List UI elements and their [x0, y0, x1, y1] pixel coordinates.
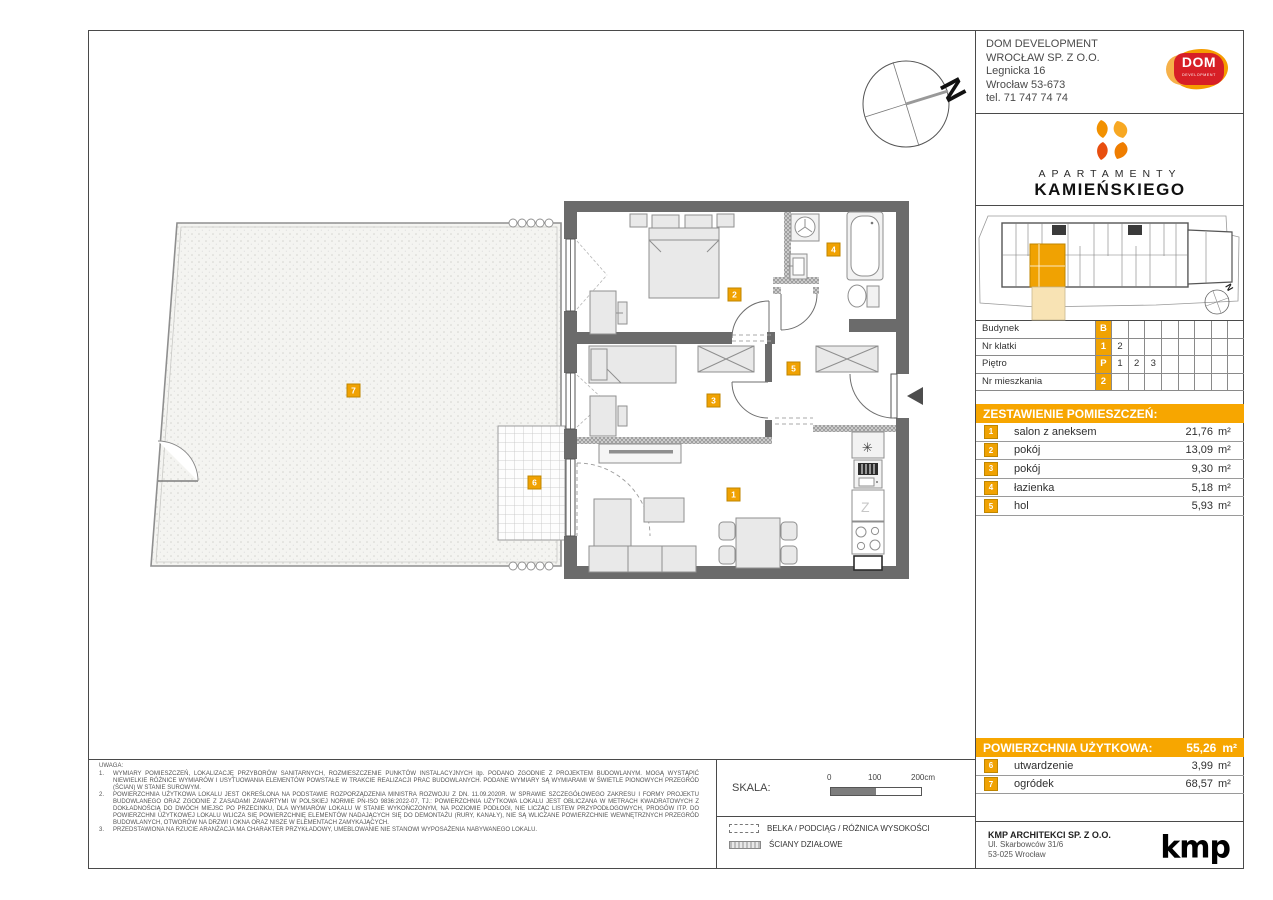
hall-furniture	[816, 346, 878, 372]
oven	[854, 460, 882, 488]
chair	[719, 522, 735, 540]
floor-plan-sheet: N	[0, 0, 1273, 900]
project-brand: APARTAMENTY KAMIEŃSKIEGO	[976, 114, 1244, 206]
tv	[609, 450, 673, 454]
scale-bar	[830, 787, 922, 796]
svg-text:3: 3	[711, 396, 716, 406]
chair	[719, 546, 735, 564]
unit-info-table: Budynek B Nr klatki 1 2	[976, 321, 1244, 391]
architect-info: KMP ARCHITEKCI SP. Z O.O. Ul. Skarbowców…	[976, 821, 1244, 868]
list-item: 2 pokój 13,09 m²	[976, 442, 1244, 461]
room-label-7: 7	[347, 384, 360, 397]
room-label-2: 2	[728, 288, 741, 301]
nightstand	[717, 214, 734, 227]
coffee-table	[644, 498, 684, 522]
bottom-strip: UWAGA: 1. WYMIARY POMIESZCZEŃ, LOKALIZAC…	[89, 759, 975, 869]
double-bed	[649, 228, 719, 298]
partition-symbol-icon	[729, 841, 761, 849]
svg-text:7: 7	[351, 386, 356, 396]
list-item: 4 łazienka 5,18 m²	[976, 479, 1244, 498]
entry-arrow-icon	[907, 387, 923, 405]
toilet	[848, 285, 879, 307]
legend-box: BELKA / PODCIĄG / RÓŻNICA WYSOKOŚCI ŚCIA…	[716, 817, 975, 869]
site-compass-label: N	[1223, 282, 1235, 293]
usable-area-title: POWIERZCHNIA UŻYTKOWA:	[983, 741, 1153, 755]
wardrobe	[698, 346, 754, 372]
room-number-badge: 6	[984, 759, 998, 773]
site-staircase	[1128, 225, 1142, 235]
counter-symbol: Z	[861, 499, 870, 515]
pillow	[652, 215, 679, 228]
legend-partition-label: ŚCIANY DZIAŁOWE	[769, 840, 843, 849]
brand-line-2: KAMIEŃSKIEGO	[976, 180, 1244, 200]
legend-item-beam: BELKA / PODCIĄG / RÓŻNICA WYSOKOŚCI	[729, 824, 975, 833]
dining-table	[736, 518, 780, 568]
note-item: 3. PRZEDSTAWIONA NA RZUCIE ARANŻACJA MA …	[99, 827, 699, 834]
svg-text:1: 1	[731, 490, 736, 500]
cooktop	[852, 522, 884, 554]
site-compass-icon: N	[1205, 282, 1235, 314]
room-number-badge: 4	[984, 481, 998, 495]
site-highlighted-garden	[1032, 287, 1065, 320]
info-panel: DOM DEVELOPMENT WROCŁAW SP. Z O.O. Legni…	[975, 31, 1244, 868]
room-number-badge: 2	[984, 443, 998, 457]
rooms-header: ZESTAWIENIE POMIESZCZEŃ:	[976, 404, 1244, 423]
kamienskiego-logo-icon	[1086, 119, 1134, 161]
site-plan: N	[976, 206, 1244, 321]
room-number-badge: 7	[984, 777, 998, 791]
room-label-1: 1	[727, 488, 740, 501]
washing-machine	[791, 214, 819, 241]
room-number-badge: 5	[984, 499, 998, 513]
room-label-6: 6	[528, 476, 541, 489]
room-label-3: 3	[707, 394, 720, 407]
table-row: Nr klatki 1 2	[976, 339, 1244, 357]
room-number-badge: 1	[984, 425, 998, 439]
legend-item-partition: ŚCIANY DZIAŁOWE	[729, 840, 975, 849]
svg-text:5: 5	[791, 364, 796, 374]
compass-north-label: N	[933, 73, 972, 108]
wardrobe	[816, 346, 878, 372]
floor-plan-drawing: N	[89, 31, 975, 759]
scale-box: SKALA: 0 100 200cm	[716, 760, 975, 817]
room-label-5: 5	[787, 362, 800, 375]
chair	[781, 522, 797, 540]
chair	[781, 546, 797, 564]
table-row: Piętro P 1 2 3	[976, 356, 1244, 374]
list-item: 1 salon z aneksem 21,76 m²	[976, 423, 1244, 442]
kitchen-strip: ✳ Z	[852, 432, 884, 570]
brand-line-1: APARTAMENTY	[976, 168, 1244, 180]
developer-info: DOM DEVELOPMENT WROCŁAW SP. Z O.O. Legni…	[976, 31, 1244, 114]
list-item: 7 ogródek 68,57 m²	[976, 776, 1244, 795]
note-item: 2. POWIERZCHNIA UŻYTKOWA LOKALU JEST OKR…	[99, 792, 699, 827]
chair	[618, 406, 627, 426]
sheet-frame: N	[88, 30, 1244, 869]
list-item: 3 pokój 9,30 m²	[976, 460, 1244, 479]
room-label-4: 4	[827, 243, 840, 256]
list-item: 5 hol 5,93 m²	[976, 497, 1244, 516]
pillow	[591, 349, 607, 380]
sofa-seat	[589, 546, 696, 572]
room-number-badge: 3	[984, 462, 998, 476]
table-row: Budynek B	[976, 321, 1244, 339]
desk	[590, 291, 616, 334]
freezer-symbol: ✳	[862, 441, 873, 456]
nightstand	[630, 214, 647, 227]
usable-area-unit: m²	[1222, 741, 1237, 755]
bathtub	[847, 212, 883, 280]
pillow	[685, 215, 712, 228]
counter-sink: Z	[852, 490, 884, 521]
svg-text:6: 6	[532, 478, 537, 488]
svg-text:4: 4	[831, 245, 836, 255]
desk	[590, 396, 616, 436]
scale-label: SKALA:	[732, 782, 771, 794]
legend-beam-label: BELKA / PODCIĄG / RÓŻNICA WYSOKOŚCI	[767, 824, 930, 833]
dom-development-logo: DOM DEVELOPMENT	[1166, 45, 1232, 93]
note-item: 1. WYMIARY POMIESZCZEŃ, LOKALIZACJĘ PRZY…	[99, 771, 699, 792]
table-row: Nr mieszkania 2	[976, 374, 1244, 392]
usable-area-header: POWIERZCHNIA UŻYTKOWA: 55,26 m²	[976, 738, 1244, 757]
outdoor-list: 6 utwardzenie 3,99 m² 7 ogródek 68,57 m²	[976, 757, 1244, 794]
kitchen-end-unit	[854, 556, 882, 570]
developer-phone: tel. 71 747 74 74	[986, 92, 1236, 106]
list-item: 6 utwardzenie 3,99 m²	[976, 757, 1244, 776]
notes-block: UWAGA: 1. WYMIARY POMIESZCZEŃ, LOKALIZAC…	[99, 763, 699, 834]
usable-area-value: 55,26	[1186, 741, 1216, 755]
notes-heading: UWAGA:	[99, 763, 699, 770]
site-highlighted-unit	[1030, 244, 1065, 287]
svg-text:2: 2	[732, 290, 737, 300]
kmp-logo: kmp	[1160, 829, 1230, 866]
beam-symbol-icon	[729, 824, 759, 833]
compass-icon: N	[863, 61, 972, 147]
sink	[787, 254, 807, 279]
rooms-list: 1 salon z aneksem 21,76 m² 2 pokój 13,09…	[976, 423, 1244, 516]
site-staircase	[1052, 225, 1066, 235]
